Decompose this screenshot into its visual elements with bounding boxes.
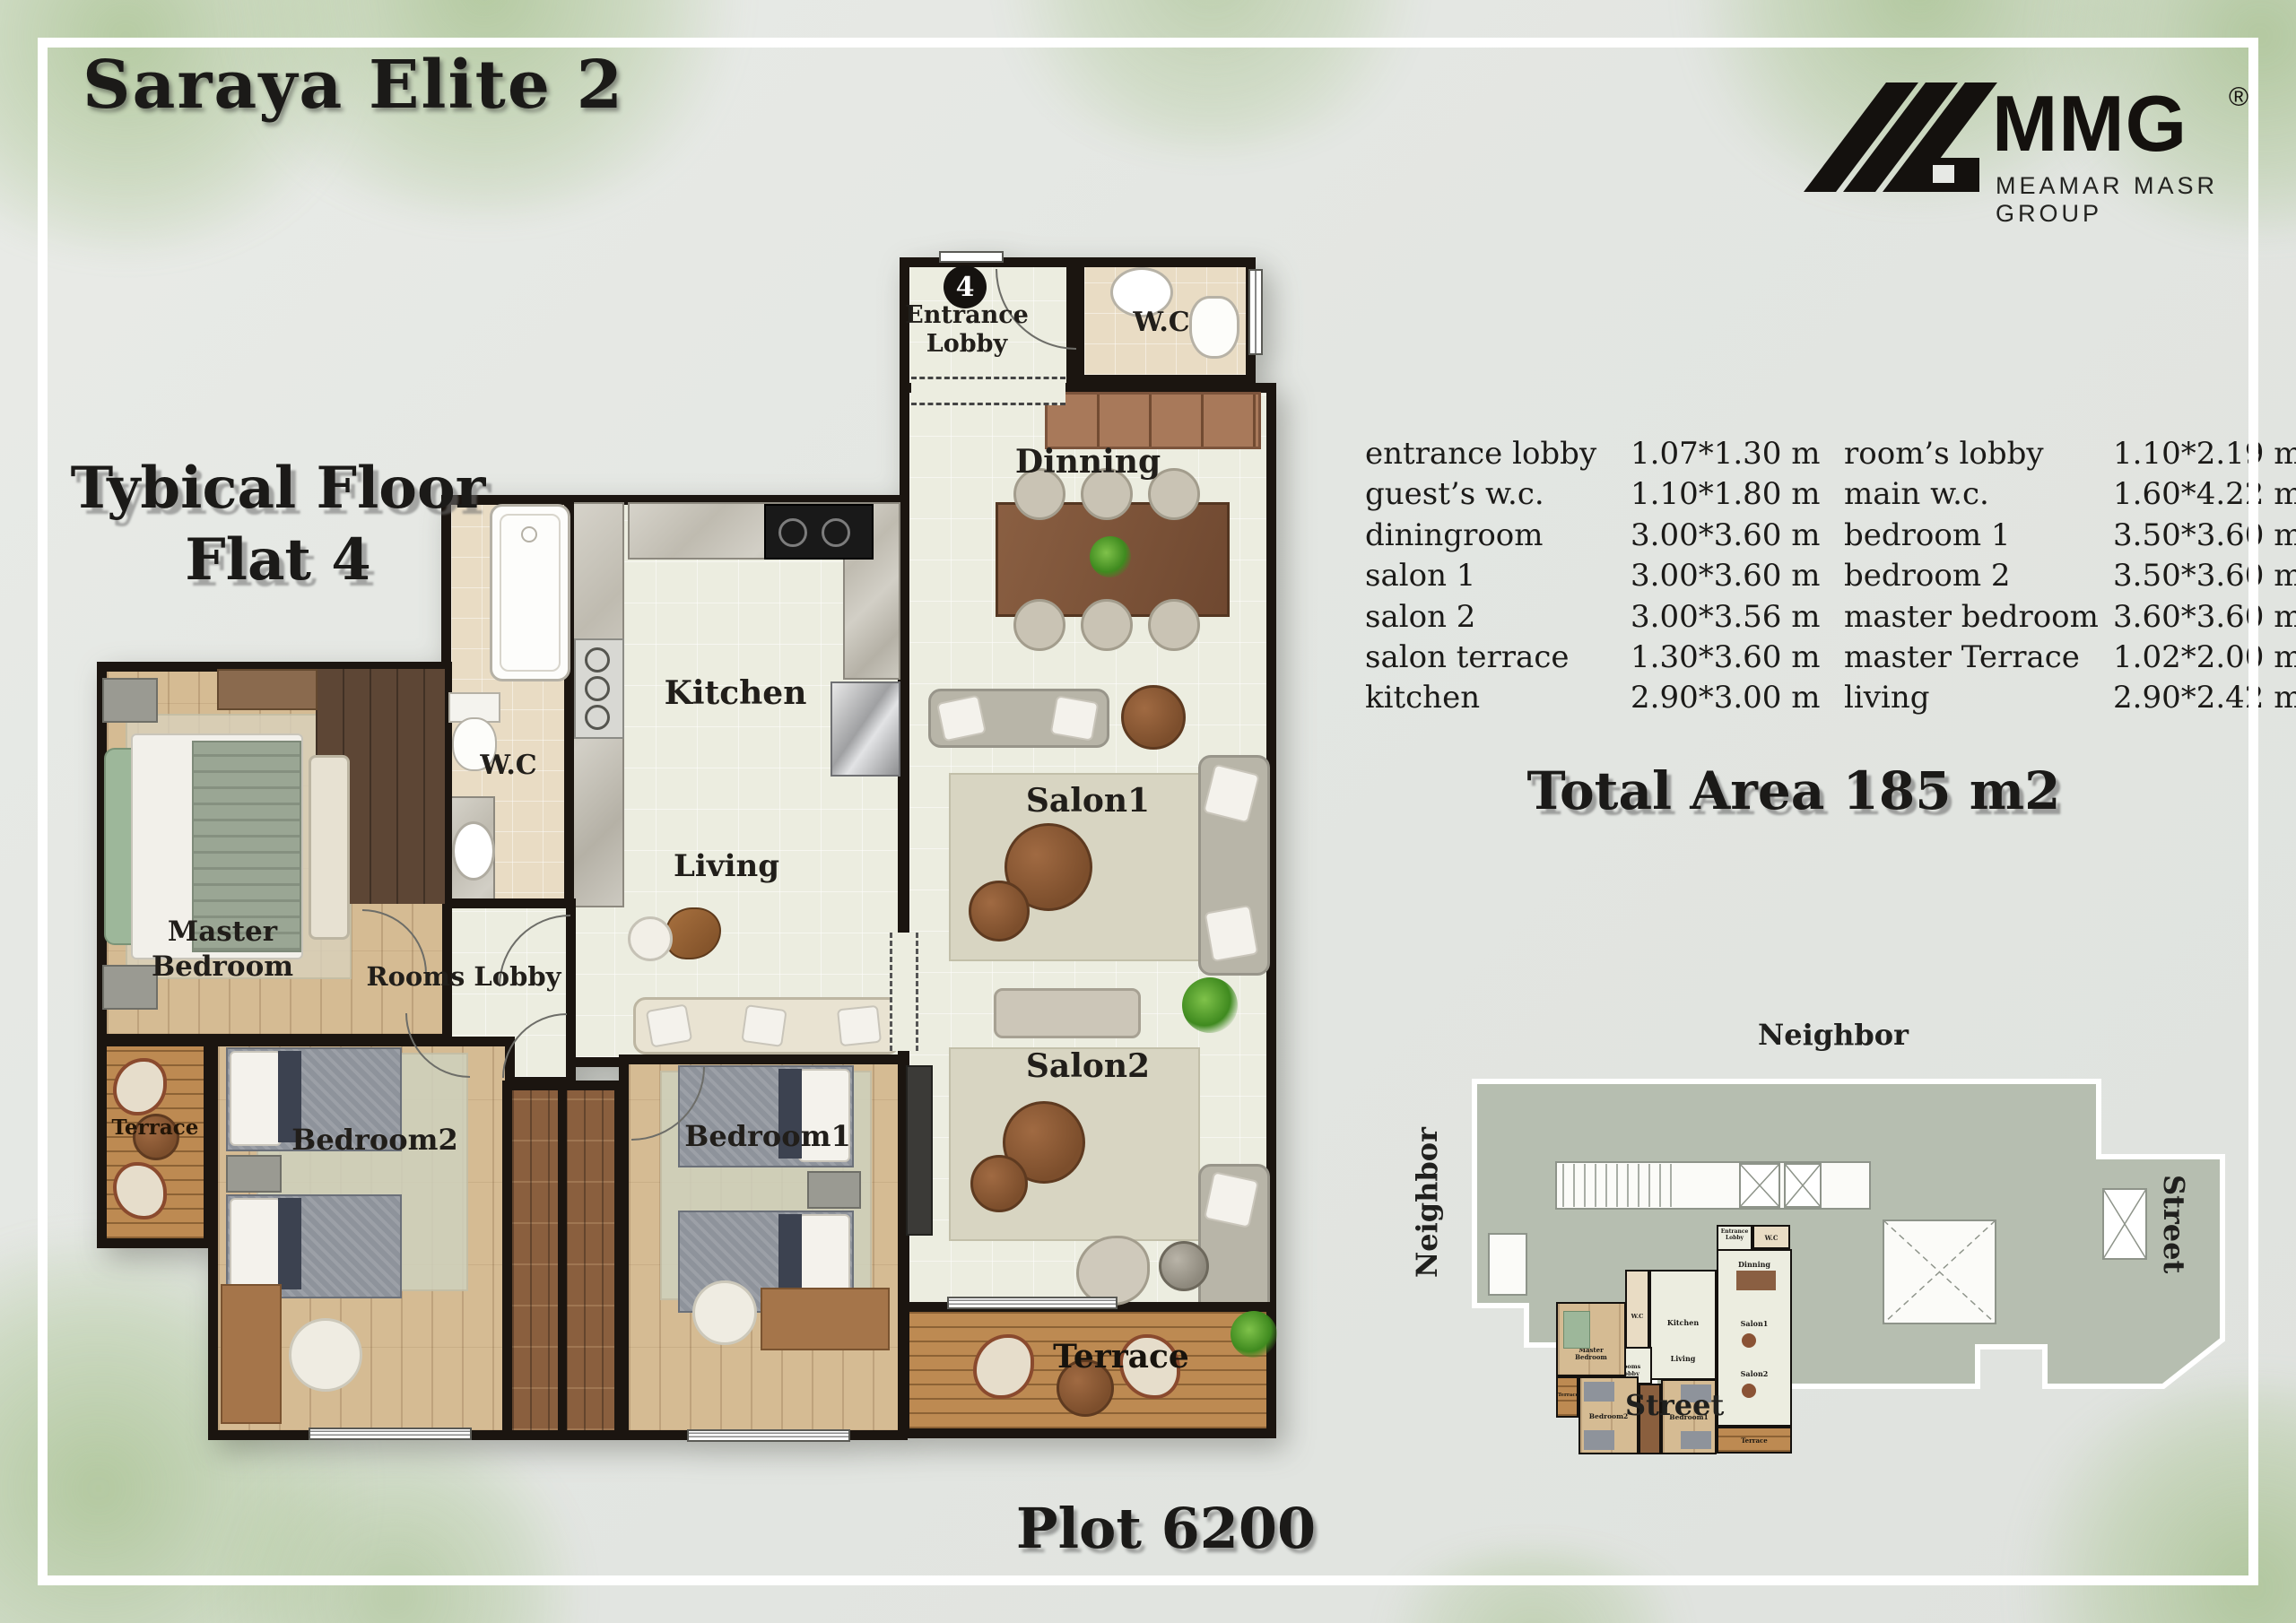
mini-kitchen-living: Kitchen Living xyxy=(1649,1270,1717,1380)
mini-master-terrace: Terrace xyxy=(1556,1376,1578,1418)
side-table-icon xyxy=(1159,1241,1209,1291)
window-icon xyxy=(687,1429,850,1442)
window-icon xyxy=(1248,269,1263,355)
kitchen-sink-icon xyxy=(764,504,874,560)
logo-tagline: MEAMAR MASR GROUP xyxy=(1996,172,2247,228)
bed-icon xyxy=(226,1194,402,1298)
dim-size-value: 3.00*3.56 m xyxy=(1631,601,1844,634)
dining-chair-icon xyxy=(1081,599,1133,651)
bedroom2-label: Bedroom2 xyxy=(240,1123,509,1157)
living-label: Living xyxy=(592,848,861,884)
mini-master-bedroom: MasterBedroom xyxy=(1556,1302,1626,1376)
window-icon xyxy=(947,1297,1118,1309)
dim-size-value: 1.10*1.80 m xyxy=(1631,478,1844,511)
dining-chair-icon xyxy=(1013,599,1065,651)
dresser xyxy=(217,669,317,710)
side-table-icon xyxy=(1121,685,1186,750)
dining-chair-icon xyxy=(1148,599,1200,651)
kitchen-label: Kitchen xyxy=(574,674,897,712)
salon-terrace-label: Terrace xyxy=(1004,1338,1238,1376)
salon1-sofa xyxy=(928,689,1109,748)
bedroom1-label: Bedroom1 xyxy=(633,1119,902,1153)
tv-unit xyxy=(906,1065,933,1236)
guest-wc-label: W.C xyxy=(1112,307,1211,338)
dim-room-label: master Terrace xyxy=(1844,641,2113,674)
master-bedroom-label: MasterBedroom xyxy=(106,915,339,985)
bed-bench xyxy=(309,755,350,940)
dim-room-label: salon terrace xyxy=(1365,641,1631,674)
registered-mark-icon: ® xyxy=(2229,82,2248,113)
living-sofa xyxy=(633,997,900,1055)
dim-room-label: salon 2 xyxy=(1365,601,1631,634)
round-rug xyxy=(289,1318,362,1392)
wardrobe-divider xyxy=(558,1085,567,1435)
neighbor-left-label: Neighbor xyxy=(1410,1125,1444,1278)
desk xyxy=(761,1288,890,1350)
sink-icon xyxy=(452,821,495,881)
project-title: Saraya Elite 2 xyxy=(83,47,624,124)
mini-salon-terrace: Terrace xyxy=(1717,1427,1792,1454)
dim-size-value: 2.90*3.00 m xyxy=(1631,681,1844,715)
salon1-label: Salon1 xyxy=(909,782,1267,820)
total-area: Total Area 185 m2 xyxy=(1368,760,2220,821)
bench xyxy=(994,988,1141,1038)
logo-wordmark: MMG xyxy=(1992,84,2187,163)
bathtub-icon xyxy=(490,504,570,681)
desk xyxy=(221,1284,282,1424)
dim-room-label: master bedroom xyxy=(1844,601,2113,634)
flat-number-badge: 4 xyxy=(944,265,987,308)
desk-chair-icon xyxy=(692,1280,757,1345)
dim-room-label: bedroom 2 xyxy=(1844,560,2113,593)
main-wc-label: W.C xyxy=(448,750,569,781)
mmg-logo: MMG ® MEAMAR MASR GROUP xyxy=(1825,82,2247,208)
dim-size-value: 1.07*1.30 m xyxy=(1631,438,1844,471)
dim-size-value: 2.90*2.42 m xyxy=(2113,681,2226,715)
dim-room-label: guest’s w.c. xyxy=(1365,478,1631,511)
floor-flat-subtitle: Tybical Floor Flat 4 xyxy=(63,453,493,596)
poster-page: Saraya Elite 2 Tybical Floor Flat 4 MMG … xyxy=(0,0,2296,1623)
sideboard xyxy=(1045,392,1261,449)
street-bottom-label: Street xyxy=(1625,1388,1724,1422)
nightstand-icon xyxy=(226,1155,282,1193)
dim-size-value: 3.00*3.60 m xyxy=(1631,519,1844,552)
dim-size-value: 3.00*3.60 m xyxy=(1631,560,1844,593)
entrance-door-gap xyxy=(939,251,1004,263)
street-right-label: Street xyxy=(2157,1175,2191,1291)
window-icon xyxy=(309,1428,472,1440)
entrance-threshold xyxy=(911,377,1065,405)
logo-notch-icon xyxy=(1933,165,1954,183)
dim-room-label: diningroom xyxy=(1365,519,1631,552)
mini-entrance: EntranceLobby xyxy=(1717,1225,1752,1251)
subtitle-line2: Flat 4 xyxy=(185,526,371,594)
plant-icon xyxy=(1182,977,1238,1033)
coffee-table-icon xyxy=(970,1155,1028,1212)
dim-size-value: 1.02*2.00 m xyxy=(2113,641,2226,674)
dinning-label: Dinning xyxy=(909,443,1267,481)
plot-number: Plot 6200 xyxy=(897,1496,1435,1561)
mini-guest-wc: W.C xyxy=(1752,1225,1790,1249)
armchair-icon xyxy=(1076,1236,1150,1306)
dim-room-label: main w.c. xyxy=(1844,478,2113,511)
dim-room-label: bedroom 1 xyxy=(1844,519,2113,552)
dim-room-label: kitchen xyxy=(1365,681,1631,715)
rooms-lobby-label: Rooms Lobby xyxy=(352,961,576,992)
centerpiece-plant-icon xyxy=(1090,536,1131,577)
subtitle-line1: Tybical Floor xyxy=(71,455,486,522)
dim-size-value: 3.60*3.60 m xyxy=(2113,601,2226,634)
dim-size-value: 1.10*2.19 m xyxy=(2113,438,2226,471)
dim-size-value: 1.60*4.22 m xyxy=(2113,478,2226,511)
master-terrace-label: Terrace xyxy=(99,1115,212,1140)
neighbor-top-label: Neighbor xyxy=(1758,1018,1909,1052)
nightstand-icon xyxy=(102,678,158,723)
mini-main-column: Dinning Salon1 Salon2 xyxy=(1717,1249,1792,1427)
dim-size-value: 3.50*3.60 m xyxy=(2113,519,2226,552)
dimensions-table: entrance lobby1.07*1.30 mroom’s lobby1.1… xyxy=(1365,438,2226,716)
entrance-lobby-label: EntranceLobby xyxy=(904,301,1030,360)
living-opening xyxy=(890,933,918,1051)
nightstand-icon xyxy=(807,1171,861,1209)
dim-room-label: room’s lobby xyxy=(1844,438,2113,471)
coffee-table-icon xyxy=(969,881,1030,942)
living-side-table-icon xyxy=(628,916,673,961)
dim-size-value: 1.30*3.60 m xyxy=(1631,641,1844,674)
dim-room-label: living xyxy=(1844,681,2113,715)
dim-room-label: salon 1 xyxy=(1365,560,1631,593)
dim-size-value: 3.50*3.60 m xyxy=(2113,560,2226,593)
dim-room-label: entrance lobby xyxy=(1365,438,1631,471)
salon2-label: Salon2 xyxy=(909,1047,1267,1085)
